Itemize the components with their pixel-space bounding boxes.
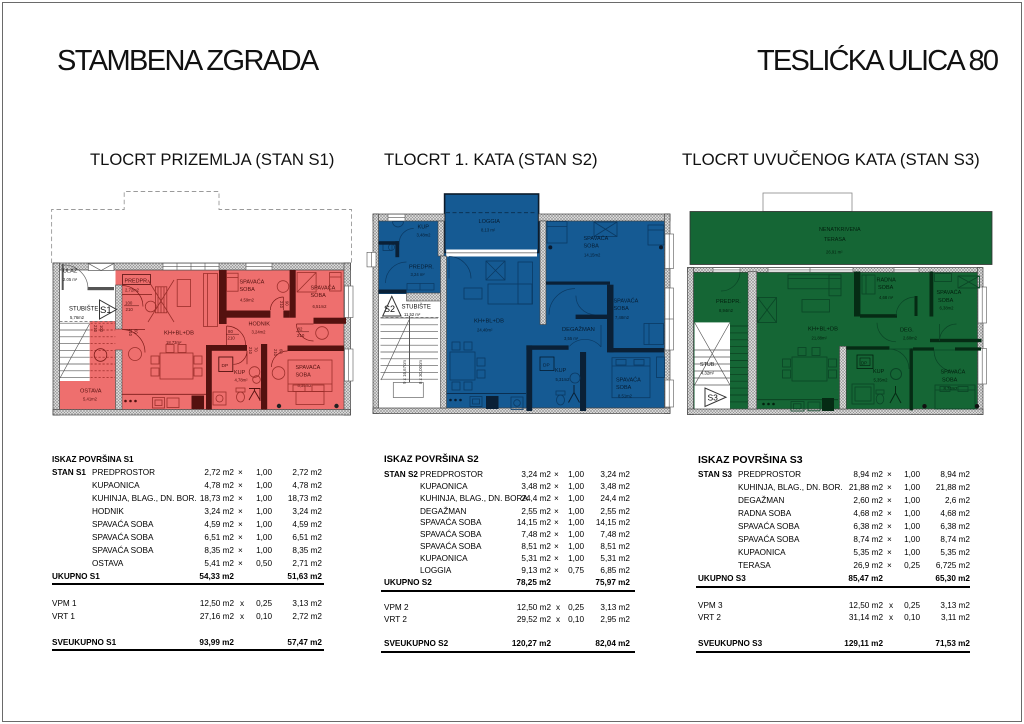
svg-text:SOBA: SOBA bbox=[942, 378, 958, 384]
svg-text:210: 210 bbox=[93, 325, 98, 333]
svg-text:70: 70 bbox=[254, 347, 259, 352]
svg-text:90: 90 bbox=[285, 301, 290, 306]
svg-text:STUBIŠTE: STUBIŠTE bbox=[402, 304, 431, 311]
svg-text:3,48m2: 3,48m2 bbox=[417, 233, 432, 238]
svg-text:SOBA: SOBA bbox=[584, 244, 600, 250]
svg-text:S3: S3 bbox=[708, 393, 719, 403]
svg-text:100: 100 bbox=[99, 325, 104, 333]
svg-text:KH+BL+DB: KH+BL+DB bbox=[808, 327, 838, 333]
svg-text:SOBA: SOBA bbox=[614, 306, 630, 312]
svg-text:6,38m2: 6,38m2 bbox=[940, 306, 955, 311]
svg-text:SOBA: SOBA bbox=[296, 373, 312, 379]
svg-text:SPAVAĆA: SPAVAĆA bbox=[614, 298, 639, 305]
svg-text:2,60m2: 2,60m2 bbox=[903, 336, 918, 341]
svg-text:LOGGIA: LOGGIA bbox=[479, 219, 501, 225]
svg-text:S1: S1 bbox=[100, 305, 112, 316]
svg-text:KH+BL+DB: KH+BL+DB bbox=[474, 319, 504, 325]
svg-text:5,41m2: 5,41m2 bbox=[83, 397, 98, 402]
svg-text:DP: DP bbox=[861, 361, 867, 366]
svg-text:SPAVAĆA: SPAVAĆA bbox=[941, 369, 966, 376]
svg-text:DP: DP bbox=[222, 363, 229, 369]
svg-text:STUBIŠTE: STUBIŠTE bbox=[69, 306, 98, 313]
svg-text:ULAZ: ULAZ bbox=[63, 269, 78, 275]
svg-text:NENATKRIVENA: NENATKRIVENA bbox=[819, 227, 861, 233]
svg-text:3,24 m²: 3,24 m² bbox=[411, 272, 426, 277]
svg-text:5,31m2: 5,31m2 bbox=[556, 377, 571, 382]
svg-text:210: 210 bbox=[128, 329, 133, 337]
svg-text:DEG.: DEG. bbox=[900, 328, 914, 334]
svg-text:3,55 m²: 3,55 m² bbox=[564, 336, 579, 341]
svg-text:PREDPR.: PREDPR. bbox=[125, 279, 149, 285]
svg-text:SPAVAĆA: SPAVAĆA bbox=[296, 364, 321, 371]
svg-text:TERASA: TERASA bbox=[824, 237, 846, 243]
svg-text:KUP: KUP bbox=[555, 368, 567, 374]
svg-text:STUB.: STUB. bbox=[700, 362, 716, 368]
svg-text:2.05 m²: 2.05 m² bbox=[63, 277, 78, 282]
svg-text:4,78m²: 4,78m² bbox=[235, 378, 249, 383]
svg-text:21,88m²: 21,88m² bbox=[812, 336, 828, 341]
svg-text:KUP: KUP bbox=[234, 370, 246, 376]
svg-text:4,68 m²: 4,68 m² bbox=[879, 295, 894, 300]
svg-text:4,59m2: 4,59m2 bbox=[240, 298, 255, 303]
svg-text:210: 210 bbox=[228, 336, 236, 341]
svg-text:S2: S2 bbox=[384, 304, 395, 314]
svg-text:SPAVAĆA: SPAVAĆA bbox=[616, 377, 641, 384]
svg-text:8,13 m²: 8,13 m² bbox=[481, 228, 496, 233]
svg-text:5,35m2: 5,35m2 bbox=[874, 378, 889, 383]
svg-text:KUP: KUP bbox=[418, 225, 430, 231]
svg-text:DEGAŽMAN: DEGAŽMAN bbox=[562, 325, 595, 333]
svg-text:8 x 30,00cm: 8 x 30,00cm bbox=[418, 360, 423, 384]
svg-text:80: 80 bbox=[228, 329, 233, 334]
svg-text:KUP: KUP bbox=[873, 369, 885, 375]
svg-text:SPAVAĆA: SPAVAĆA bbox=[584, 235, 609, 242]
svg-text:OSTAVA: OSTAVA bbox=[80, 389, 102, 395]
svg-text:SOBA: SOBA bbox=[240, 287, 256, 293]
svg-text:KH+BL+DB: KH+BL+DB bbox=[164, 331, 194, 337]
svg-text:24,40m²: 24,40m² bbox=[477, 328, 493, 333]
svg-text:SOBA: SOBA bbox=[878, 285, 894, 291]
svg-text:SPAVAĆA: SPAVAĆA bbox=[311, 285, 336, 292]
svg-text:11,52 m²: 11,52 m² bbox=[404, 312, 421, 317]
svg-text:26,91 m²: 26,91 m² bbox=[826, 250, 843, 255]
svg-text:SOBA: SOBA bbox=[311, 293, 327, 299]
svg-text:SPAVAĆA: SPAVAĆA bbox=[240, 279, 265, 286]
svg-text:RADNA: RADNA bbox=[877, 278, 897, 284]
svg-text:PREDPR.: PREDPR. bbox=[716, 299, 741, 305]
svg-text:210: 210 bbox=[273, 349, 278, 357]
svg-text:HODNIK: HODNIK bbox=[249, 322, 271, 328]
svg-text:210: 210 bbox=[297, 333, 305, 338]
svg-text:210: 210 bbox=[279, 301, 284, 309]
svg-text:4,32m²: 4,32m² bbox=[701, 371, 715, 376]
svg-text:82: 82 bbox=[298, 326, 303, 331]
svg-text:SOBA: SOBA bbox=[616, 385, 632, 391]
svg-text:7,48m2: 7,48m2 bbox=[615, 315, 630, 320]
svg-text:DP: DP bbox=[543, 363, 550, 369]
svg-text:8,94m2: 8,94m2 bbox=[719, 308, 734, 313]
svg-text:60: 60 bbox=[134, 329, 139, 334]
svg-text:100: 100 bbox=[125, 301, 133, 306]
svg-text:6,51m2: 6,51m2 bbox=[313, 304, 328, 309]
svg-text:SOBA: SOBA bbox=[938, 298, 954, 304]
svg-text:210: 210 bbox=[126, 307, 134, 312]
svg-text:14,15m2: 14,15m2 bbox=[584, 253, 601, 258]
svg-text:5,76m2: 5,76m2 bbox=[70, 315, 85, 320]
svg-text:SPAVAĆA: SPAVAĆA bbox=[937, 289, 962, 296]
svg-text:9 x 16,67cm: 9 x 16,67cm bbox=[402, 360, 407, 384]
svg-text:PREDPR.: PREDPR. bbox=[409, 265, 434, 271]
svg-text:210: 210 bbox=[248, 347, 253, 355]
svg-text:3,24m2: 3,24m2 bbox=[252, 330, 267, 335]
